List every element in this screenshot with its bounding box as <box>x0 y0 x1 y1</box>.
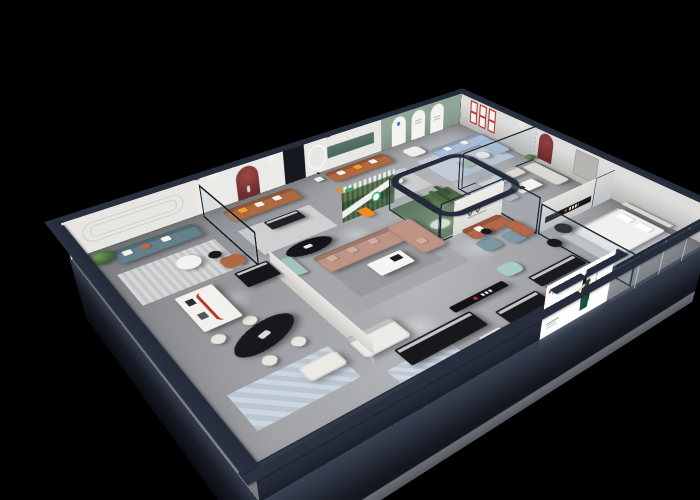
cream-dining-chair <box>259 353 281 368</box>
statue-pedestal <box>313 176 324 182</box>
red-arch-niche-east <box>537 131 554 164</box>
showroom-render <box>0 0 700 500</box>
pillow-white <box>368 159 379 164</box>
pillow-mauve <box>415 237 428 244</box>
red-brand-mark <box>473 296 479 300</box>
red-arch-niche <box>235 163 261 201</box>
white-arch-panel <box>411 108 425 141</box>
pillow-mauve <box>367 237 380 244</box>
shelf-slot <box>197 312 210 320</box>
arch-caption-bars <box>434 115 441 121</box>
table-decor <box>257 330 272 340</box>
table-decor <box>303 243 314 249</box>
statue-figure <box>316 172 321 175</box>
red-frame-picture <box>470 111 478 125</box>
bed-pillow <box>616 213 635 223</box>
pillow-rust <box>139 243 151 250</box>
arch-caption-bars <box>415 119 422 125</box>
black-tray <box>389 254 403 262</box>
red-frame-picture <box>478 115 486 130</box>
white-armchair <box>401 146 428 158</box>
pillow-mauve <box>326 254 339 262</box>
bed-pillow <box>634 223 654 233</box>
isometric-scene <box>0 0 700 500</box>
arch-blue-logo <box>397 122 400 126</box>
pillow-white <box>336 170 347 175</box>
cream-dining-chair <box>288 334 309 348</box>
niche-vase <box>247 185 251 193</box>
pillow-white <box>254 201 266 207</box>
pillow-white <box>459 140 469 145</box>
pillow-mauve <box>346 246 359 253</box>
white-arch-panel <box>392 114 406 147</box>
shelf-items <box>480 289 493 296</box>
shelf-slot <box>185 298 197 306</box>
white-arch-panel <box>430 102 444 134</box>
pillow-white <box>271 195 283 201</box>
pillow-orange <box>352 164 363 169</box>
red-frame-picture <box>487 119 495 134</box>
ring-light <box>307 142 327 172</box>
pillow-white <box>442 146 453 151</box>
pillow-orange <box>237 207 249 213</box>
cream-dining-chair <box>208 332 229 346</box>
floor-plan <box>71 124 700 500</box>
